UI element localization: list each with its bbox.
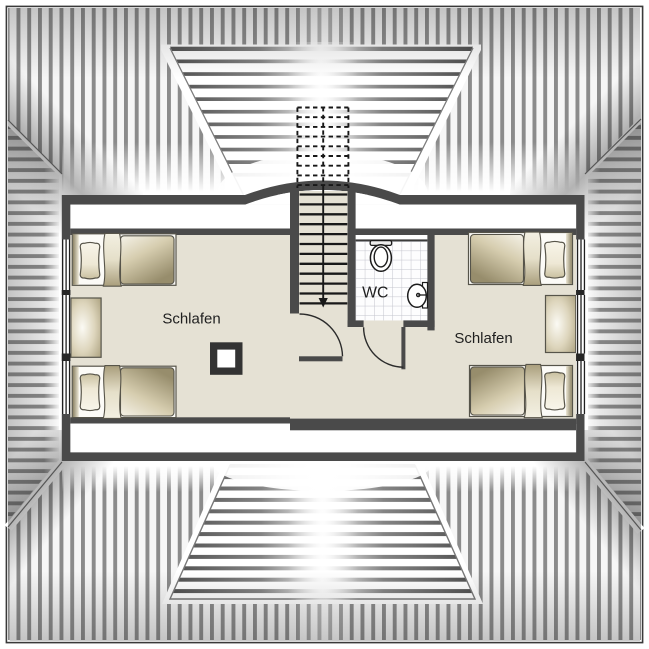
svg-text:Schlafen: Schlafen (162, 311, 220, 328)
svg-text:Schlafen: Schlafen (454, 330, 512, 347)
svg-text:WC: WC (362, 285, 388, 302)
